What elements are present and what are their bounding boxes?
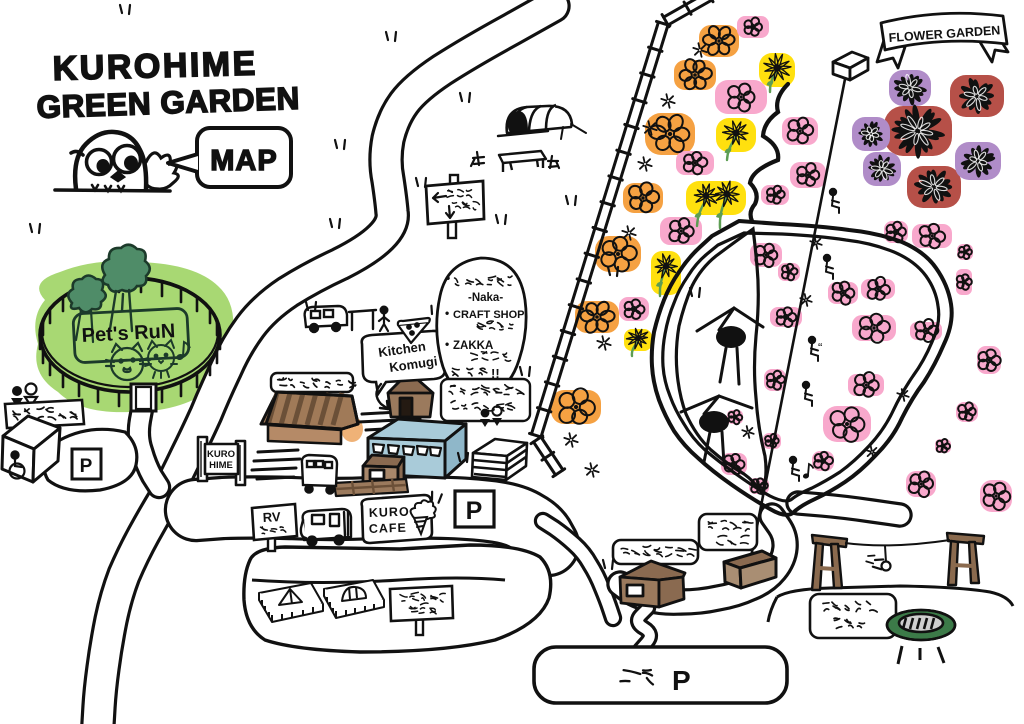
svg-text:-Naka-: -Naka- bbox=[468, 292, 503, 304]
svg-text:CAFE: CAFE bbox=[369, 521, 407, 536]
svg-text:P: P bbox=[672, 665, 691, 696]
svg-text:•: • bbox=[445, 337, 449, 351]
svg-text:“: “ bbox=[818, 340, 822, 355]
svg-text:CRAFT SHOP: CRAFT SHOP bbox=[453, 309, 525, 321]
svg-text:KURO: KURO bbox=[369, 505, 410, 520]
svg-text:•: • bbox=[446, 271, 450, 285]
svg-text:P: P bbox=[466, 497, 483, 525]
svg-text:HIME: HIME bbox=[209, 460, 233, 471]
svg-text:•: • bbox=[445, 306, 449, 320]
svg-text:P: P bbox=[80, 456, 93, 477]
svg-text:RV: RV bbox=[262, 509, 281, 525]
svg-text:ZAKKA: ZAKKA bbox=[453, 340, 493, 352]
svg-text:MAP: MAP bbox=[210, 145, 277, 177]
svg-text:KURO: KURO bbox=[207, 449, 235, 460]
